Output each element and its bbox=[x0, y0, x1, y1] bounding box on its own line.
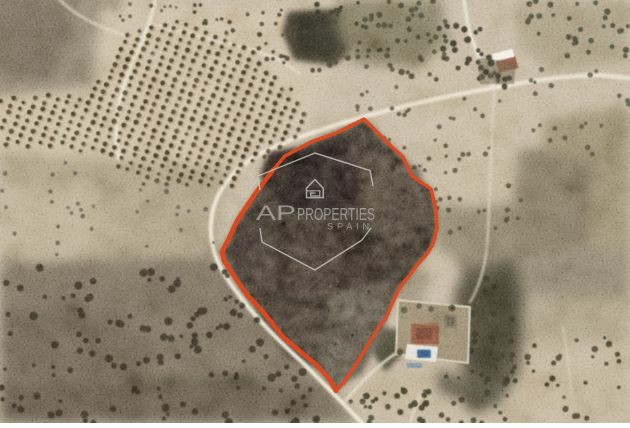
svg-text:AP: AP bbox=[256, 201, 296, 225]
svg-text:SPAIN: SPAIN bbox=[327, 222, 373, 233]
